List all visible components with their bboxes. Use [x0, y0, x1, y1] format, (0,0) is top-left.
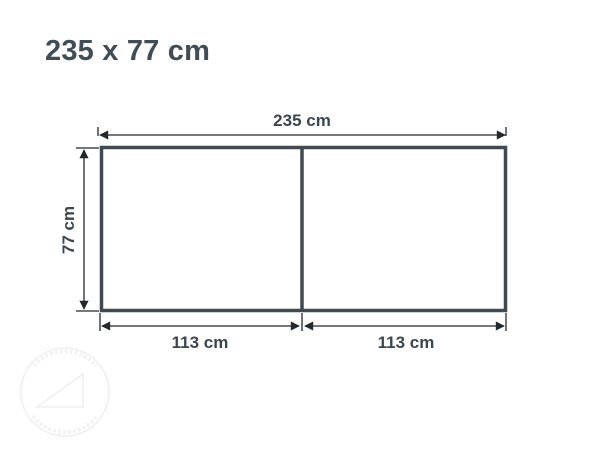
- width-dimension-label: 235 cm: [273, 111, 331, 130]
- watermark-circle: [21, 348, 109, 436]
- panel-dimension-drawing: 235 cm 77 cm 113 cm 113 cm: [0, 0, 607, 455]
- watermark-triangle: [37, 374, 83, 407]
- bottom-dimensions: [100, 313, 506, 331]
- height-dimension-label: 77 cm: [59, 206, 78, 254]
- right-section-dimension-label: 113 cm: [378, 333, 435, 352]
- left-section-dimension-label: 113 cm: [172, 333, 229, 352]
- left-dimension: [76, 148, 99, 311]
- watermark-stamp: [21, 348, 109, 436]
- dimension-diagram: 235 x 77 cm 235 cm 7: [0, 0, 607, 455]
